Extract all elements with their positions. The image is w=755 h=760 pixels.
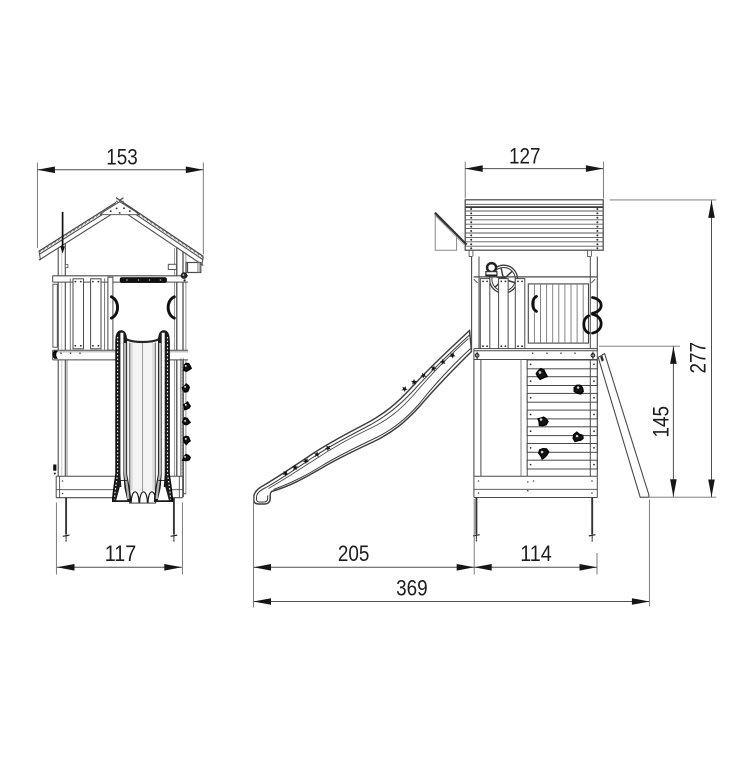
svg-text:127: 127 [509, 144, 541, 169]
svg-text:145: 145 [649, 406, 674, 438]
svg-text:277: 277 [686, 342, 711, 374]
svg-text:153: 153 [106, 145, 138, 170]
svg-text:369: 369 [396, 575, 428, 600]
svg-text:117: 117 [105, 541, 137, 566]
svg-text:205: 205 [338, 541, 370, 566]
svg-text:114: 114 [520, 541, 552, 566]
